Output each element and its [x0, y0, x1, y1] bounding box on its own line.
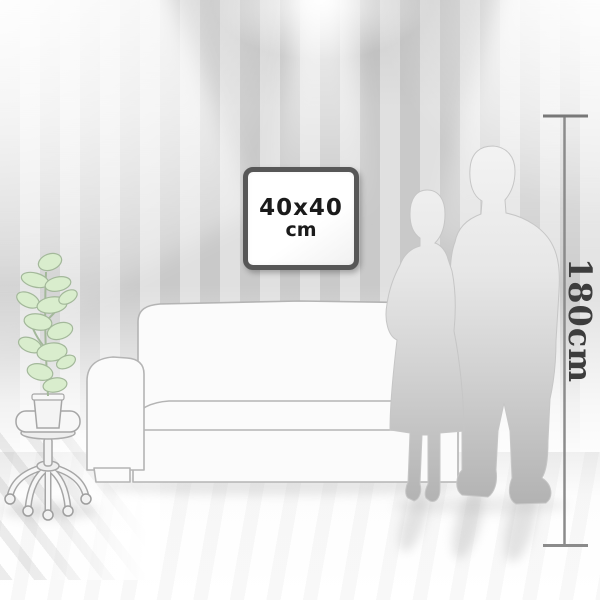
room-visualization: 40x40 cm 180cm — [0, 0, 600, 600]
woman-silhouette — [386, 190, 464, 501]
couple-silhouette — [0, 0, 600, 600]
man-silhouette — [450, 146, 559, 504]
